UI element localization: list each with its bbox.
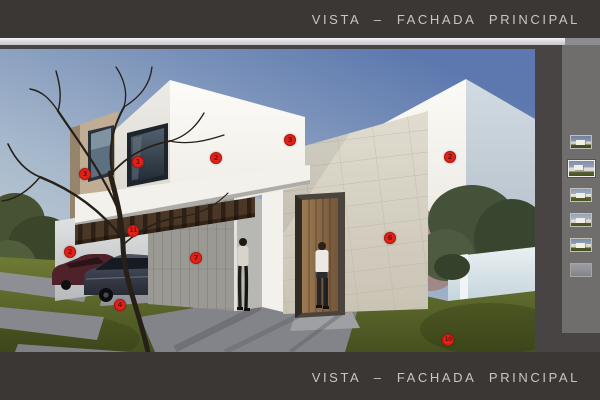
footer-bar: VISTA – FACHADA PRINCIPAL	[0, 352, 600, 400]
view-thumbnail-1[interactable]	[570, 135, 592, 149]
divider-strip	[0, 38, 565, 45]
header-bar: VISTA – FACHADA PRINCIPAL	[0, 0, 600, 38]
view-thumbnail-2[interactable]	[568, 160, 595, 177]
thumbnail-list	[568, 135, 595, 277]
footer-title: VISTA – FACHADA PRINCIPAL	[312, 370, 580, 385]
header-title: VISTA – FACHADA PRINCIPAL	[312, 12, 580, 27]
view-thumbnail-6[interactable]	[570, 263, 592, 277]
view-thumbnail-3[interactable]	[570, 188, 592, 202]
facade-render-image	[0, 49, 535, 352]
facade-render	[0, 49, 535, 352]
view-thumbnail-5[interactable]	[570, 238, 592, 252]
presentation-slide: VISTA – FACHADA PRINCIPAL	[0, 0, 600, 400]
divider-strip-right	[565, 38, 600, 45]
thumbnail-sidebar	[562, 45, 600, 333]
view-thumbnail-4[interactable]	[570, 213, 592, 227]
